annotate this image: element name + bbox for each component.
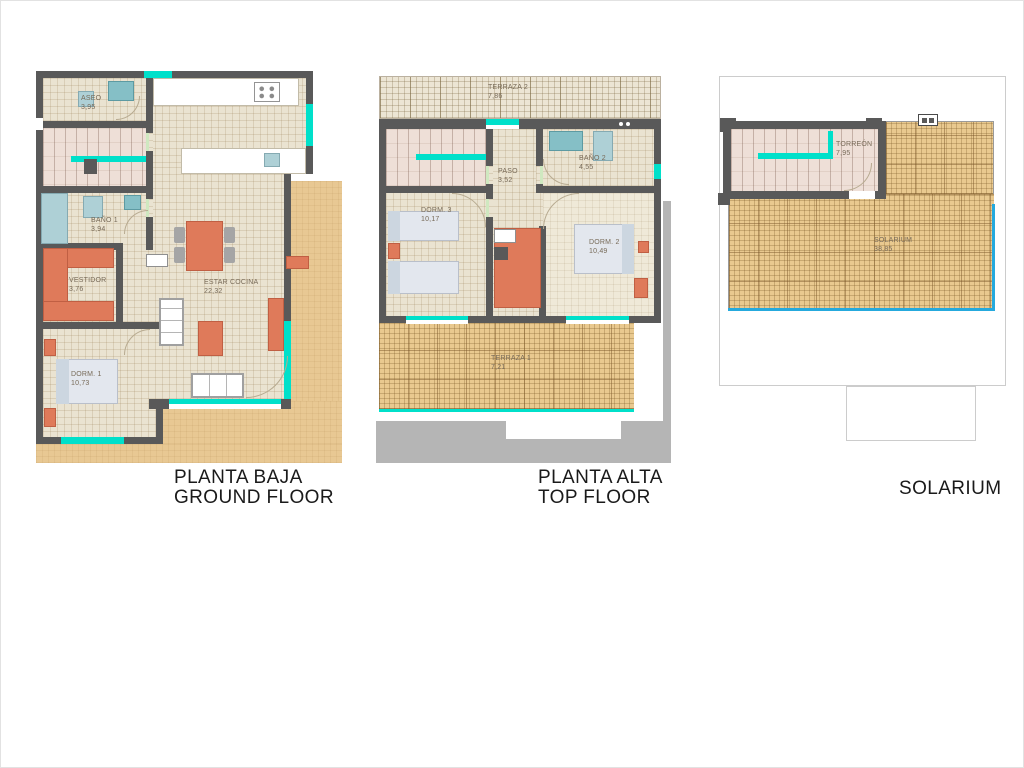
window-sill [406,320,468,324]
title-line-es: PLANTA ALTA [538,468,663,488]
door-leaf [486,199,489,217]
window [144,71,172,78]
wall [116,243,123,329]
stair-rail [416,154,486,160]
room-name: DORM. 2 [589,239,620,248]
room-area: 10,49 [589,248,620,257]
room-label-solarium: SOLARIUM 38,85 [874,237,912,254]
chair [174,247,185,263]
wall [43,186,146,193]
door-leaf [540,166,543,184]
kitchen-island [181,148,306,174]
room-area: 10,73 [71,380,102,389]
plan-ground-floor: ASEO 3,95 BAÑO 1 3,94 VESTIDOR 3,76 DORM… [36,71,342,463]
pillow [388,211,400,241]
chair [224,247,235,263]
window [654,164,661,179]
stair-rail [758,153,833,159]
room-name: BAÑO 2 [579,155,606,164]
title-line-en: TOP FLOOR [538,488,663,508]
dining-table [186,221,223,271]
bathtub [41,193,68,244]
deck-edge-blue [992,204,995,311]
vent-icon [918,114,938,126]
room-name: BAÑO 1 [91,217,118,226]
title-ground-floor: PLANTA BAJA GROUND FLOOR [174,468,334,507]
room-label-dorm1: DORM. 1 10,73 [71,371,102,388]
shadow-notch [506,421,621,439]
wall [536,186,661,193]
closet-niche [494,229,516,243]
solarium-deck [886,121,994,194]
room-name: ASEO [81,95,101,104]
room-area: 38,85 [874,246,912,255]
pillow [622,224,634,274]
room-area: 3,52 [498,177,518,186]
shelving-unit [159,298,184,346]
room-name: TORREÓN [836,141,872,150]
plan-top-floor: TERRAZA 2 7,86 PASO 3,52 BAÑO 2 4,55 DOR… [376,71,671,463]
wall [43,121,146,128]
room-label-bano1: BAÑO 1 3,94 [91,217,118,234]
room-label-paso: PASO 3,52 [498,168,518,185]
room-label-terraza2: TERRAZA 2 7,86 [488,84,528,101]
door-opening [36,118,43,130]
wall-cap [718,193,730,205]
room-name: TERRAZA 1 [491,355,531,364]
floorplan-sheet: ASEO 3,95 BAÑO 1 3,94 VESTIDOR 3,76 DORM… [0,0,1024,768]
door-leaf [146,254,168,267]
wall [379,186,486,193]
room-area: 7,21 [491,364,531,373]
room-area: 4,55 [579,164,606,173]
room-name: SOLARIUM [874,237,912,246]
dresser [634,278,648,298]
room-name: DORM. 3 [421,207,452,216]
room-area: 22,32 [204,288,258,297]
room-area: 7,86 [488,93,528,102]
window [61,437,124,444]
nightstand [388,243,400,259]
stair-newel [84,159,97,174]
kitchen-sink [264,153,280,167]
wardrobe [43,301,114,321]
room-label-dorm3: DORM. 3 10,17 [421,207,452,224]
room-label-torreon: TORREÓN 7,95 [836,141,872,158]
title-line: SOLARIUM [899,479,1001,499]
room-name: TERRAZA 2 [488,84,528,93]
stair-rail [828,131,833,153]
wall-dot [626,122,630,126]
nightstand [44,339,56,356]
room-name: ESTAR COCINA [204,279,258,288]
room-label-vestidor: VESTIDOR 3,76 [69,277,106,294]
sideboard [268,298,284,351]
title-top-floor: PLANTA ALTA TOP FLOOR [538,468,663,507]
room-name: VESTIDOR [69,277,106,286]
room-area: 3,76 [69,286,106,295]
window-sill [169,404,281,409]
wall-dot [619,122,623,126]
room-name: PASO [498,168,518,177]
pillow [388,261,400,294]
door-leaf [486,166,489,184]
wall [36,322,163,329]
outdoor-bench [286,256,309,269]
tiled-floor [43,403,156,437]
window [306,104,313,146]
room-area: 3,94 [91,226,118,235]
room-label-aseo: ASEO 3,95 [81,95,101,112]
stove-icon [254,82,280,102]
door-opening [849,191,875,199]
room-label-bano2: BAÑO 2 4,55 [579,155,606,172]
room-name: DORM. 1 [71,371,102,380]
solarium-deck [728,194,994,311]
nightstand [638,241,649,253]
sofa [191,373,244,398]
wall [654,119,661,323]
chair [174,227,185,243]
room-label-dorm2: DORM. 2 10,49 [589,239,620,256]
roof-outline [846,386,976,441]
room-area: 7,95 [836,150,872,159]
wall [379,119,386,323]
nightstand [44,408,56,427]
pillow [56,359,69,404]
wall [36,71,313,78]
terrace-edge [379,412,634,417]
wall-stub [494,247,508,260]
title-line-en: GROUND FLOOR [174,488,334,508]
terrace-area [36,444,342,463]
room-label-estar-cocina: ESTAR COCINA 22,32 [204,279,258,296]
coffee-table [198,321,223,356]
stair-rail [71,156,146,162]
room-area: 3,95 [81,104,101,113]
title-solarium: SOLARIUM [899,479,1001,499]
window-sill [486,125,519,129]
deck-edge-blue [728,308,995,311]
washbasin [549,131,583,151]
washbasin [124,195,141,210]
door-leaf [146,133,149,151]
room-area: 10,17 [421,216,452,225]
title-line-es: PLANTA BAJA [174,468,334,488]
room-label-terraza1: TERRAZA 1 7,21 [491,355,531,372]
plan-solarium: TORREÓN 7,95 SOLARIUM 38,85 [716,71,1011,463]
chair [224,227,235,243]
window-sill [566,320,629,324]
bidet-fixture [83,196,103,218]
